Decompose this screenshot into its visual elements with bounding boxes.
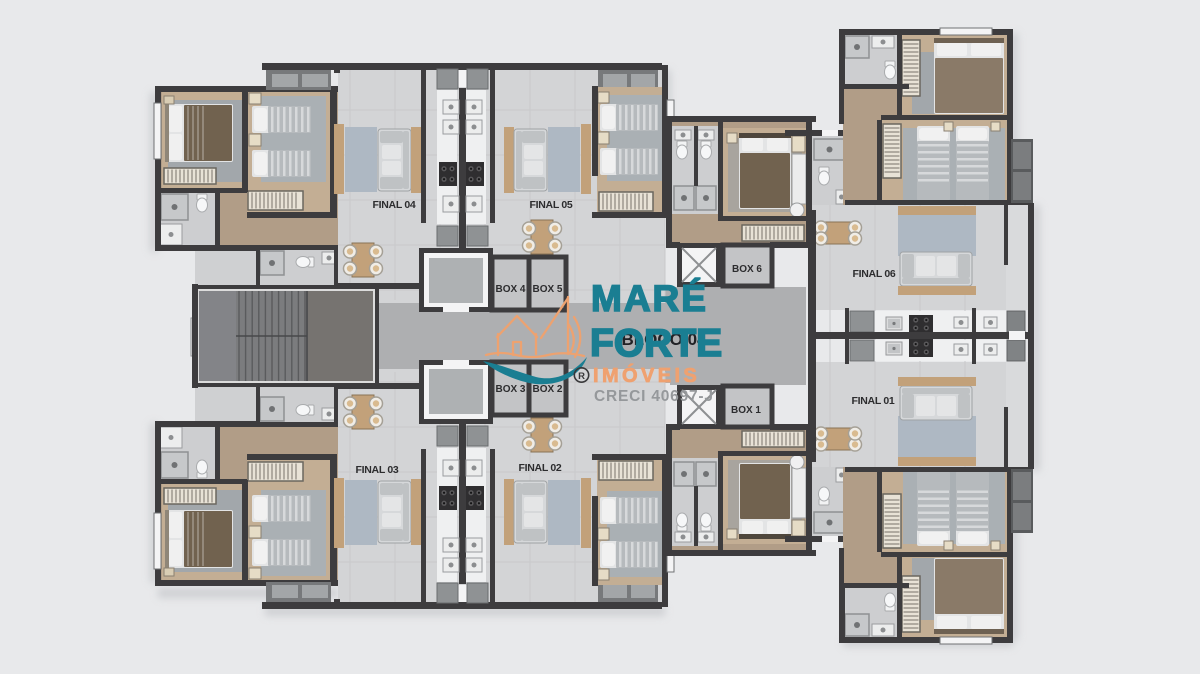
svg-text:R: R (578, 371, 585, 382)
svg-text:FINAL 03: FINAL 03 (356, 464, 399, 476)
svg-text:FORTE: FORTE (590, 322, 722, 365)
svg-text:FINAL 05: FINAL 05 (530, 199, 573, 211)
svg-text:BOX 2: BOX 2 (532, 384, 562, 395)
svg-text:BOX 5: BOX 5 (532, 284, 562, 295)
svg-text:BOX 4: BOX 4 (495, 284, 525, 295)
svg-text:BOX 1: BOX 1 (731, 405, 761, 416)
svg-text:FINAL 01: FINAL 01 (852, 395, 895, 407)
svg-text:CRECI 40697-J: CRECI 40697-J (594, 388, 714, 405)
svg-text:BOX 6: BOX 6 (732, 264, 762, 275)
svg-text:FINAL 02: FINAL 02 (519, 462, 562, 474)
svg-text:MARÉ: MARÉ (591, 278, 708, 319)
svg-text:FINAL 04: FINAL 04 (373, 199, 416, 211)
svg-text:BOX 3: BOX 3 (495, 384, 525, 395)
svg-text:IMÓVEIS: IMÓVEIS (593, 363, 700, 387)
svg-text:FINAL 06: FINAL 06 (853, 268, 896, 280)
